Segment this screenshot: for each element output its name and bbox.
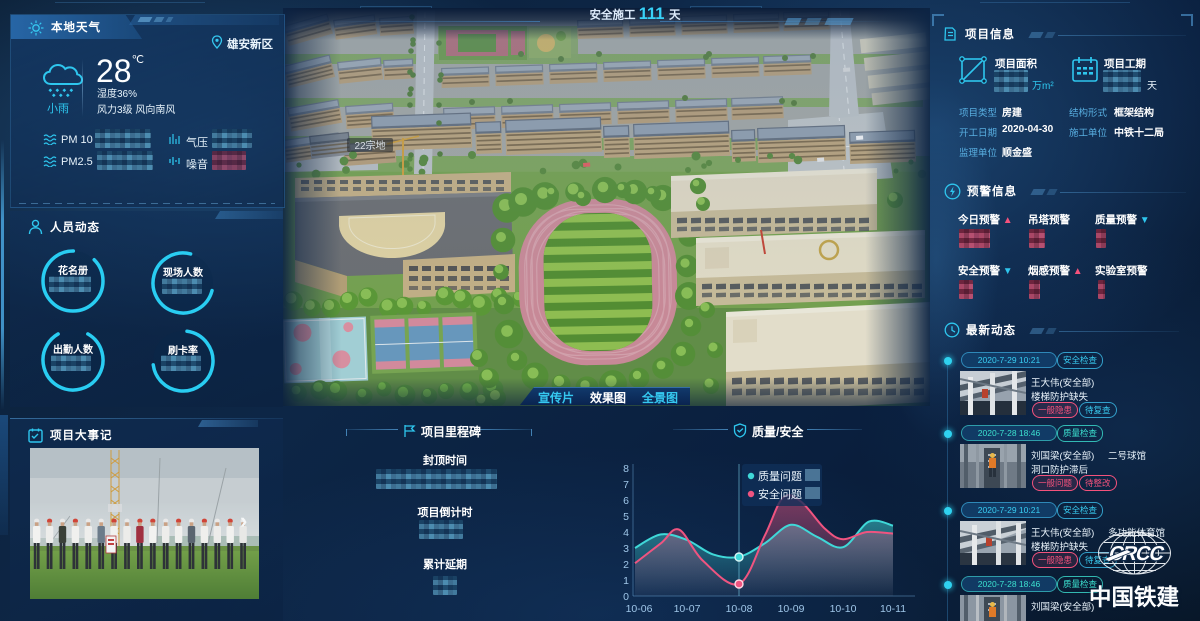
svg-text:3: 3 [623,543,629,555]
svg-text:10-09: 10-09 [778,603,805,615]
svg-text:8: 8 [623,463,629,475]
svg-text:0: 0 [623,591,629,603]
svg-text:7: 7 [623,479,629,491]
svg-text:10-08: 10-08 [726,603,753,615]
svg-text:质量问题: 质量问题 [758,470,802,483]
svg-text:5: 5 [623,511,629,523]
svg-text:2: 2 [623,559,629,571]
svg-text:安全问题: 安全问题 [758,487,802,501]
svg-text:1: 1 [623,575,629,587]
svg-text:10-11: 10-11 [880,603,906,615]
svg-text:10-07: 10-07 [674,603,701,615]
svg-text:10-06: 10-06 [626,603,653,615]
svg-text:4: 4 [623,527,629,539]
svg-text:10-10: 10-10 [830,603,857,615]
svg-text:6: 6 [623,495,629,507]
